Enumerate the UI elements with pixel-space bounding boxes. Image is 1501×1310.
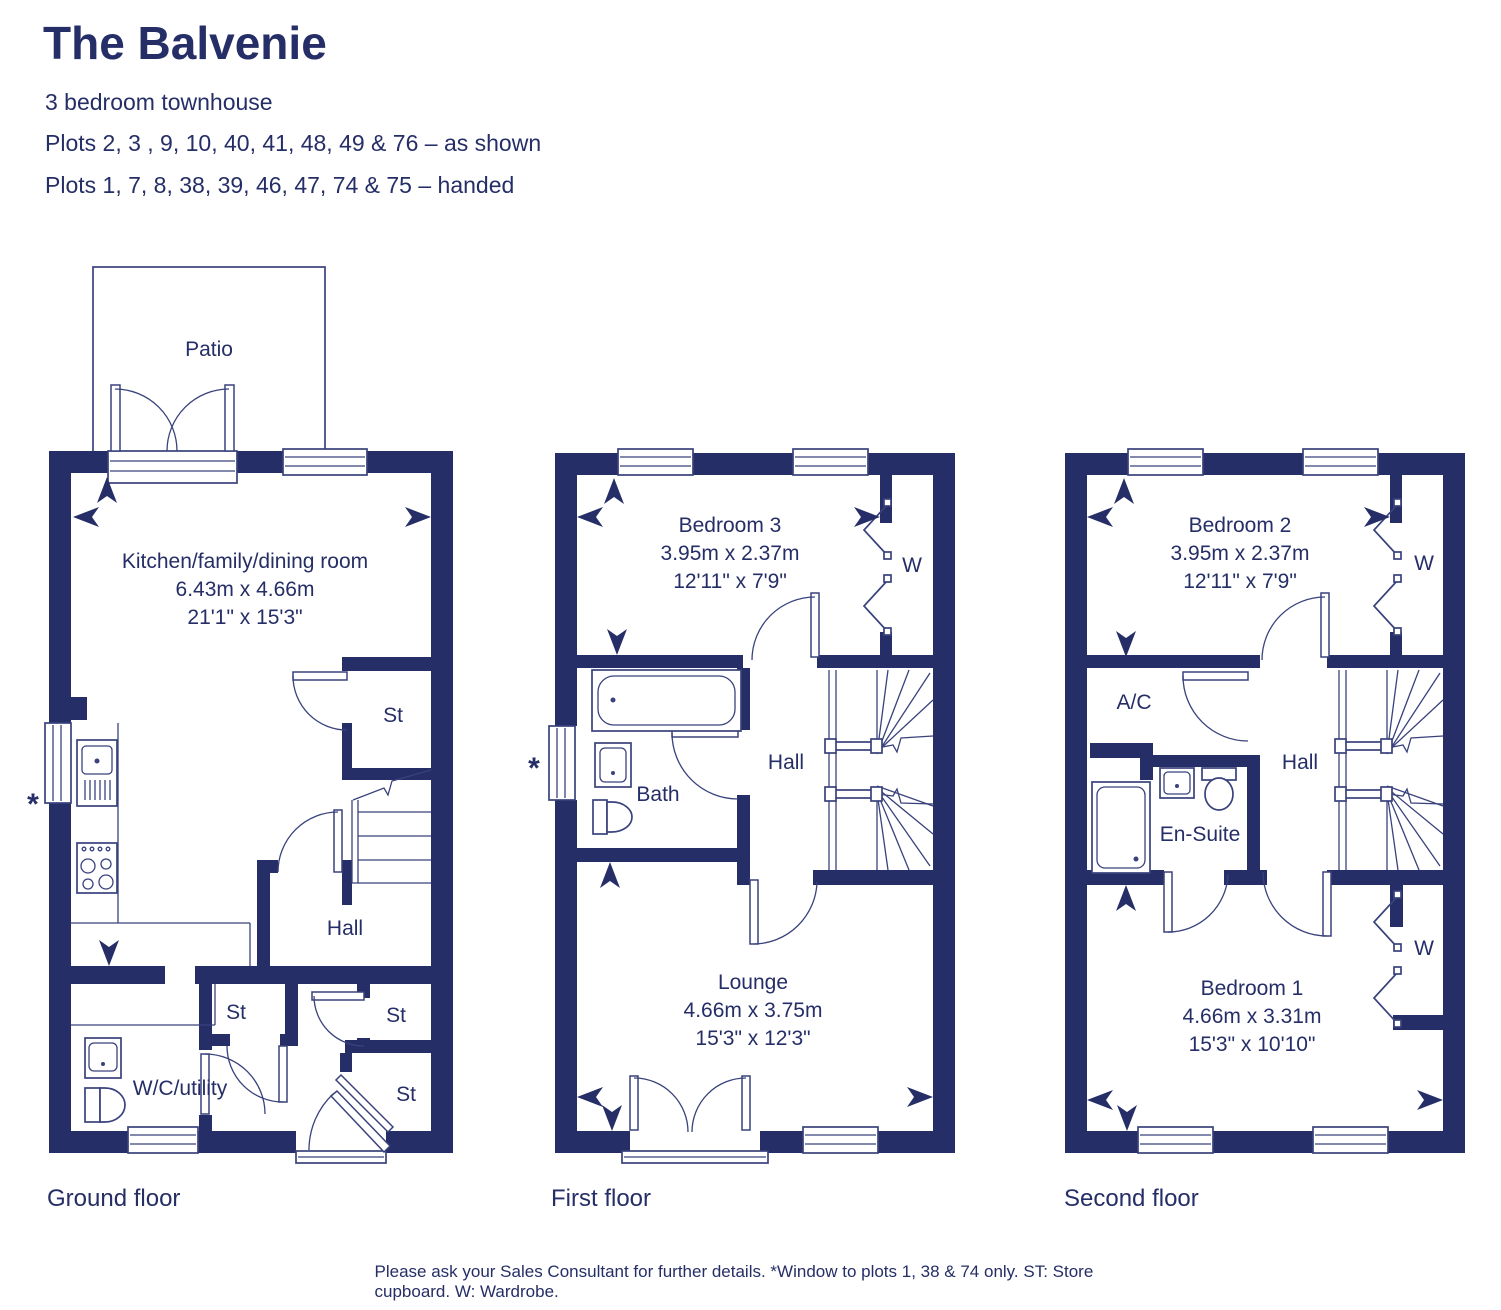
footer-note: Please ask your Sales Consultant for fur… (375, 1262, 1126, 1302)
utility-worktop (71, 984, 215, 1025)
first-hall-label: Hall (768, 751, 804, 775)
ground-hall-label: Hall (327, 917, 363, 941)
second-floor-label: Second floor (1064, 1185, 1199, 1213)
room-metric: 4.66m x 3.75m (684, 997, 823, 1025)
ensuite-basin-icon (1160, 768, 1194, 798)
room-imperial: 15'3" x 12'3" (684, 1025, 823, 1053)
french-doors (111, 385, 234, 451)
room-metric: 4.66m x 3.31m (1183, 1003, 1322, 1031)
plots-as-shown: Plots 2, 3 , 9, 10, 40, 41, 48, 49 & 76 … (45, 130, 541, 157)
airing-cupboard-label: A/C (1116, 691, 1151, 715)
room-name: Bedroom 2 (1171, 512, 1310, 540)
page-title: The Balvenie (43, 16, 327, 70)
wc-utility-label: W/C/utility (133, 1077, 228, 1101)
patio-label: Patio (185, 338, 233, 362)
room-imperial: 12'11" x 7'9" (661, 568, 800, 596)
wc-toilet-icon (85, 1088, 125, 1122)
wardrobe-label: W (1414, 937, 1434, 961)
store-label: St (386, 1004, 406, 1028)
bedroom1-label: Bedroom 1 4.66m x 3.31m 15'3" x 10'10" (1183, 975, 1322, 1059)
kitchen-sink-icon (77, 740, 117, 806)
window-note-asterisk: * (27, 788, 39, 822)
floorplan-page: The Balvenie 3 bedroom townhouse Plots 2… (0, 0, 1501, 1310)
shower-icon (1092, 782, 1150, 873)
wardrobe-label: W (902, 554, 922, 578)
bedroom3-label: Bedroom 3 3.95m x 2.37m 12'11" x 7'9" (661, 512, 800, 596)
window-note-asterisk: * (528, 752, 540, 786)
juliet-doors (630, 1076, 750, 1132)
room-name: Bedroom 1 (1183, 975, 1322, 1003)
room-metric: 3.95m x 2.37m (1171, 540, 1310, 568)
wardrobe-label: W (1414, 552, 1434, 576)
store-label: St (383, 704, 403, 728)
room-imperial: 12'11" x 7'9" (1171, 568, 1310, 596)
ground-stairs (352, 770, 431, 883)
lounge-label: Lounge 4.66m x 3.75m 15'3" x 12'3" (684, 969, 823, 1053)
room-metric: 3.95m x 2.37m (661, 540, 800, 568)
store-label: St (396, 1083, 416, 1107)
ensuite-label: En-Suite (1160, 823, 1241, 847)
room-imperial: 21'1" x 15'3" (122, 604, 368, 632)
hob-icon (77, 843, 117, 893)
kitchen-label: Kitchen/family/dining room 6.43m x 4.66m… (122, 548, 368, 632)
first-floor-label: First floor (551, 1185, 651, 1213)
ensuite-toilet-icon (1202, 768, 1236, 810)
bath-basin-icon (595, 743, 631, 787)
second-stairs (1335, 670, 1443, 870)
room-metric: 6.43m x 4.66m (122, 576, 368, 604)
ground-doors (201, 672, 393, 1152)
room-name: Kitchen/family/dining room (122, 548, 368, 576)
bath-toilet-icon (593, 800, 632, 834)
wc-basin-icon (85, 1038, 121, 1078)
bath-label: Bath (636, 783, 679, 807)
first-stairs (825, 670, 933, 870)
store-label: St (226, 1001, 246, 1025)
bathtub-icon (592, 670, 741, 731)
room-imperial: 15'3" x 10'10" (1183, 1031, 1322, 1059)
bedroom2-label: Bedroom 2 3.95m x 2.37m 12'11" x 7'9" (1171, 512, 1310, 596)
room-name: Bedroom 3 (661, 512, 800, 540)
room-name: Lounge (684, 969, 823, 997)
subtitle: 3 bedroom townhouse (45, 89, 273, 116)
wardrobe-doors-icon (1374, 499, 1401, 1027)
plots-handed: Plots 1, 7, 8, 38, 39, 46, 47, 74 & 75 –… (45, 172, 514, 199)
ground-floor-label: Ground floor (47, 1185, 180, 1213)
second-hall-label: Hall (1282, 751, 1318, 775)
